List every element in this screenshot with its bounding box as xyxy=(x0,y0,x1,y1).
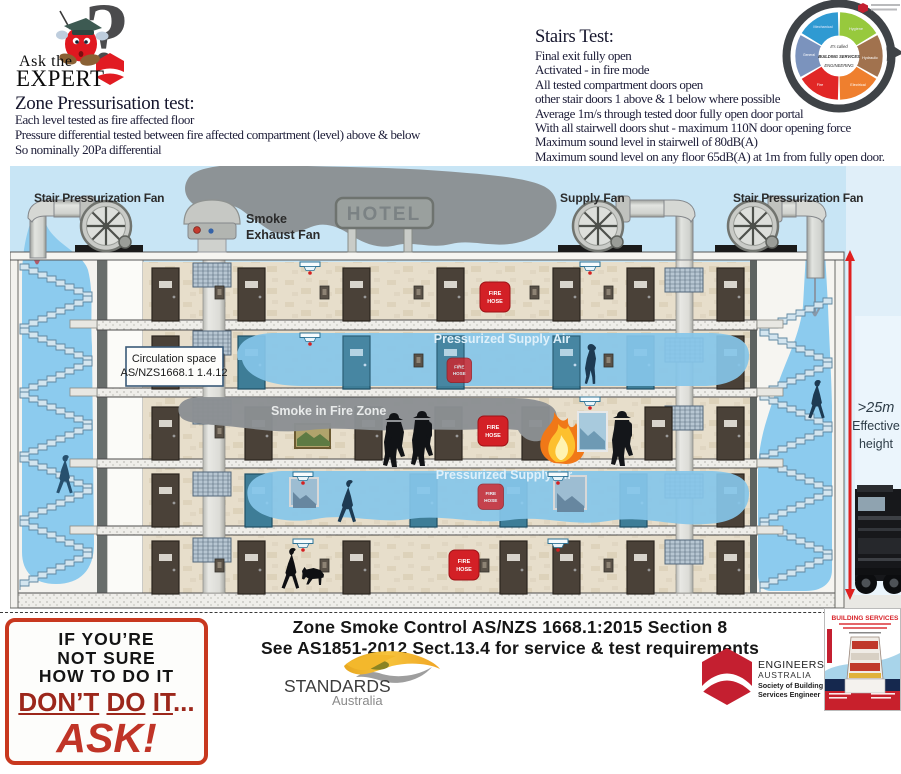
svg-text:Australia: Australia xyxy=(332,693,383,708)
svg-text:Exhaust Fan: Exhaust Fan xyxy=(246,228,320,242)
svg-text:Effective: Effective xyxy=(852,419,900,433)
svg-text:General: General xyxy=(803,53,815,57)
svg-text:AS/NZS1668.1 1.4.12: AS/NZS1668.1 1.4.12 xyxy=(120,367,227,379)
svg-text:HOTEL: HOTEL xyxy=(347,204,421,225)
svg-text:Stair Pressurization Fan: Stair Pressurization Fan xyxy=(34,191,164,205)
svg-text:It's called: It's called xyxy=(830,44,848,49)
svg-text:ENGINEERING: ENGINEERING xyxy=(824,63,854,68)
svg-text:Mechanical: Mechanical xyxy=(813,25,832,29)
svg-text:Stair Pressurization Fan: Stair Pressurization Fan xyxy=(733,191,863,205)
svg-text:Services Engineer: Services Engineer xyxy=(758,690,821,699)
svg-text:Fire: Fire xyxy=(817,83,824,87)
svg-text:BUILDING SERVICES: BUILDING SERVICES xyxy=(818,54,860,59)
svg-text:AUSTRALIA: AUSTRALIA xyxy=(758,670,812,680)
svg-text:Supply Fan: Supply Fan xyxy=(560,191,625,205)
svg-text:>25m: >25m xyxy=(858,400,895,416)
svg-text:BUILDING SERVICES: BUILDING SERVICES xyxy=(832,615,900,622)
svg-text:EXPERT: EXPERT xyxy=(16,66,105,91)
svg-text:Pressurized Supply Air: Pressurized Supply Air xyxy=(434,332,571,346)
svg-text:Smoke: Smoke xyxy=(246,212,287,226)
svg-text:Electrical: Electrical xyxy=(850,83,866,87)
svg-text:Society of Building: Society of Building xyxy=(758,681,823,690)
svg-text:Circulation space: Circulation space xyxy=(132,353,216,365)
svg-text:Smoke in Fire Zone: Smoke in Fire Zone xyxy=(271,404,386,418)
svg-text:height: height xyxy=(859,437,894,451)
svg-text:Hygiene: Hygiene xyxy=(849,27,863,31)
svg-text:Hydraulic: Hydraulic xyxy=(862,56,878,60)
